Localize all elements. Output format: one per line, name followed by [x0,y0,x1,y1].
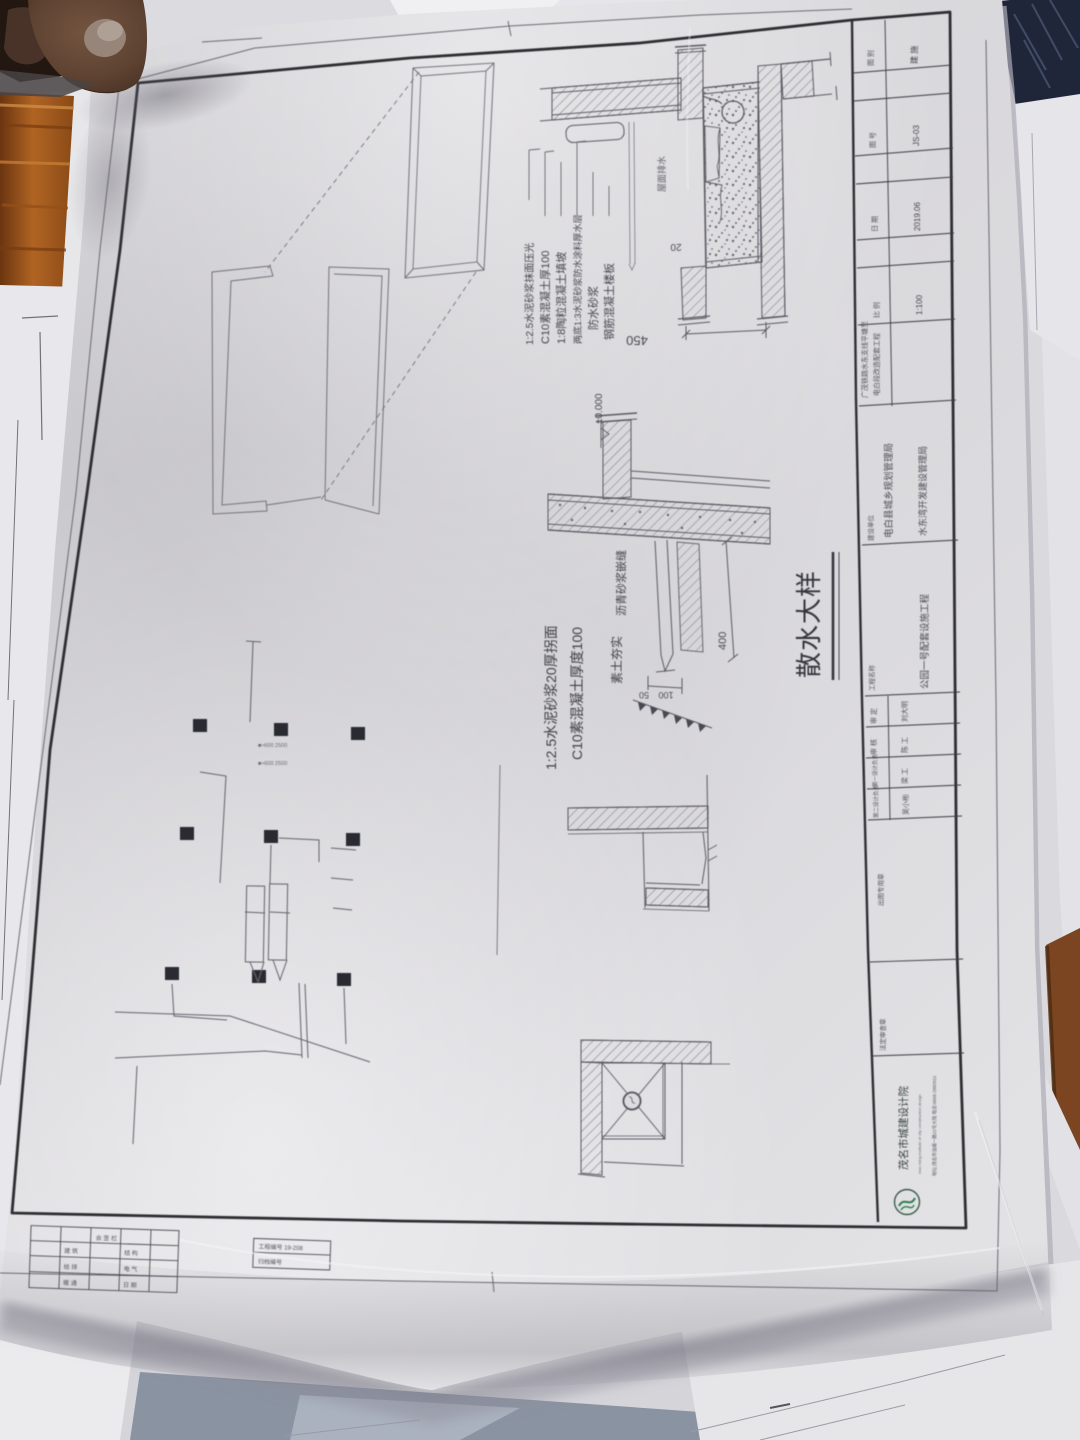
svg-text:1:2.5水泥砂浆20厚拐面: 1:2.5水泥砂浆20厚拐面 [543,625,559,770]
svg-text:100: 100 [658,690,673,700]
svg-text:图 号: 图 号 [869,132,877,148]
svg-text:20: 20 [670,241,682,252]
svg-text:审 核: 审 核 [869,739,878,755]
svg-text:日 期: 日 期 [871,216,879,232]
svg-text:■≈600 2500: ■≈600 2500 [258,743,287,749]
svg-text:审 定: 审 定 [869,708,878,724]
svg-text:第一设计负责: 第一设计负责 [871,753,879,787]
svg-text:散水大样: 散水大样 [794,570,824,678]
svg-text:图 别: 图 别 [866,50,875,66]
svg-text:水东湾开发建设管理局: 水东湾开发建设管理局 [917,446,928,536]
svg-text:公园一号配套设施工程: 公园一号配套设施工程 [919,593,931,689]
svg-text:茂名市城建设计院: 茂名市城建设计院 [897,1086,910,1170]
svg-text:广茂铁路水东支线平塘至: 广茂铁路水东支线平塘至 [860,321,869,398]
svg-text:刘大明: 刘大明 [900,701,909,722]
svg-text:吴小彬: 吴小彬 [901,794,910,815]
svg-text:2019.06: 2019.06 [913,202,922,231]
svg-text:C10素混凝土厚度100: C10素混凝土厚度100 [569,627,585,760]
svg-text:电白县城乡规划管理局: 电白县城乡规划管理局 [883,443,895,538]
svg-text:第二设计负责: 第二设计负责 [872,784,880,818]
svg-text:1:100: 1:100 [915,294,924,315]
svg-text:工程名称: 工程名称 [867,665,876,692]
svg-text:■≈600 2500: ■≈600 2500 [258,761,287,767]
svg-text:屋面排水: 屋面排水 [656,156,667,192]
svg-text:素土夯实: 素土夯实 [609,636,624,684]
svg-text:梁 工: 梁 工 [900,768,909,784]
svg-text:mao ming institute of city con: mao ming institute of city construction … [917,1094,922,1174]
svg-text:比 例: 比 例 [872,302,881,318]
svg-text:防水砂浆: 防水砂浆 [586,286,600,330]
svg-text:1:8陶粒混凝土填坡: 1:8陶粒混凝土填坡 [554,252,568,344]
svg-text:钢筋混凝土楼板: 钢筋混凝土楼板 [602,263,616,340]
svg-text:出图专用章: 出图专用章 [876,873,885,906]
svg-text:电白段改造配套工程: 电白段改造配套工程 [872,333,881,396]
svg-text:450: 450 [626,333,648,348]
svg-text:沥青砂浆嵌缝: 沥青砂浆嵌缝 [614,550,628,616]
svg-text:两底1:3水泥砂浆防水涂料厚水层: 两底1:3水泥砂浆防水涂料厚水层 [572,214,583,344]
svg-text:1:2.5水泥砂浆抹面压光: 1:2.5水泥砂浆抹面压光 [523,243,536,345]
svg-text:±0.000: ±0.000 [594,393,605,424]
svg-text:建设单位: 建设单位 [866,515,875,542]
svg-text:法定审查章: 法定审查章 [878,1018,887,1051]
svg-text:地址:茂名市油城一路22号大院 电话:0668-288: 地址:茂名市油城一路22号大院 电话:0668-2882011 [931,1075,938,1176]
svg-text:JS-03: JS-03 [912,125,921,146]
svg-text:C10素混凝土厚100: C10素混凝土厚100 [538,250,552,344]
svg-text:建 施: 建 施 [909,46,919,64]
svg-text:400: 400 [717,632,729,650]
svg-text:陈 工: 陈 工 [900,737,909,753]
svg-text:50: 50 [639,690,649,700]
